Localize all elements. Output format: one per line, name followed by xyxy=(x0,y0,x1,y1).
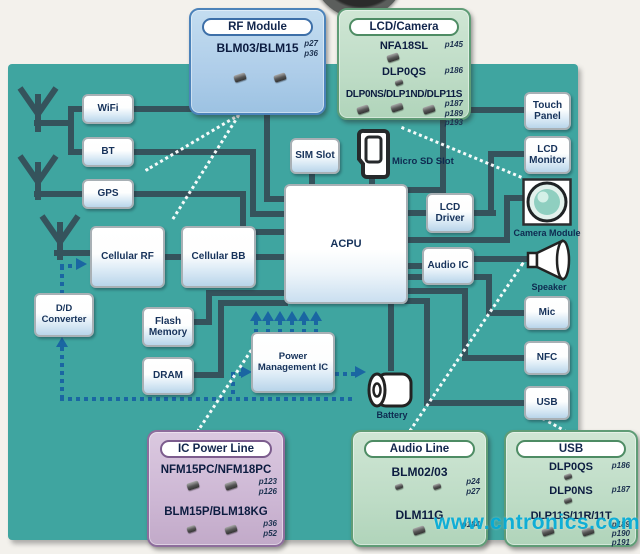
component-photo-icon xyxy=(233,72,247,82)
component-photo-icon xyxy=(356,104,370,114)
connector-line xyxy=(424,298,430,403)
component-photo-icon xyxy=(273,72,287,82)
page-refs: p187 xyxy=(612,485,630,495)
camera-module-icon xyxy=(522,178,572,226)
component-photo-icon xyxy=(432,483,441,490)
connector-line xyxy=(206,290,288,296)
power-arrow-icon xyxy=(250,311,262,321)
node-cellular-bb: Cellular BB xyxy=(181,226,256,288)
node-lcd-driver: LCD Driver xyxy=(426,193,474,233)
power-arrow-icon xyxy=(274,311,286,321)
callout-rf-module: RF Module BLM03/BLM15 p27 p36 xyxy=(189,8,326,115)
page-refs: p145 xyxy=(445,40,463,50)
page-refs: p123 p126 xyxy=(259,477,277,496)
connector-line xyxy=(264,106,270,202)
connector-line xyxy=(218,300,224,378)
connector-line xyxy=(388,303,394,371)
component-photo-icon xyxy=(394,483,403,490)
power-dashed-line xyxy=(60,266,64,294)
battery-label: Battery xyxy=(366,410,418,420)
power-arrow-icon xyxy=(310,311,322,321)
power-dashed-line xyxy=(335,372,355,376)
page-ref: p189 xyxy=(445,109,463,119)
power-dashed-line xyxy=(302,321,306,332)
connector-line xyxy=(218,300,288,306)
antenna-icon xyxy=(16,84,60,132)
page-ref: p27 xyxy=(466,487,480,497)
component-photo-icon xyxy=(563,497,572,504)
callout-ic-power-line: IC Power Line NFM15PC/NFM18PC p123 p126 … xyxy=(147,430,285,547)
node-flash-memory: Flash Memory xyxy=(142,307,194,347)
callout-title: IC Power Line xyxy=(160,440,273,458)
micro-sd-card-icon xyxy=(354,128,394,180)
component-photo-icon xyxy=(394,79,403,86)
micro-sd-slot-label: Micro SD Slot xyxy=(392,156,478,167)
page-ref: p187 xyxy=(445,99,463,109)
component-photo-icon xyxy=(386,52,400,62)
node-sim-slot: SIM Slot xyxy=(290,138,340,174)
callout-lcd-camera: LCD/Camera NFA18SL p145 DLP0QS p186 DLP0… xyxy=(337,8,471,120)
power-dashed-line xyxy=(314,321,318,332)
power-arrow-icon xyxy=(56,337,68,347)
node-lcd-monitor: LCD Monitor xyxy=(524,136,571,174)
power-arrow-icon xyxy=(355,366,366,378)
page-refs: p186 xyxy=(445,66,463,76)
component-photo-icon xyxy=(422,104,436,114)
page-ref: p24 xyxy=(466,477,480,487)
callout-title: Audio Line xyxy=(364,440,476,458)
node-mic: Mic xyxy=(524,296,570,330)
power-dashed-line xyxy=(278,321,282,332)
component-photo-icon xyxy=(224,480,238,490)
page-ref: p27 xyxy=(304,39,318,49)
connector-line xyxy=(424,400,528,406)
antenna-icon xyxy=(38,212,82,260)
page-ref: p187 xyxy=(612,485,630,495)
power-dashed-line xyxy=(290,321,294,332)
connector-line xyxy=(488,151,494,216)
component-photo-icon xyxy=(186,480,200,490)
component-photo-icon xyxy=(563,473,572,480)
node-bt: BT xyxy=(82,137,134,167)
connector-line xyxy=(404,237,510,243)
connector-line xyxy=(404,288,468,294)
page-ref: p123 xyxy=(259,477,277,487)
page-refs: p27 p36 xyxy=(304,39,318,58)
page-refs: p24 p27 xyxy=(466,477,480,496)
node-power-management-ic: Power Management IC xyxy=(251,332,335,393)
power-dashed-line xyxy=(266,321,270,332)
part-name: BLM15P/BLM18KG xyxy=(149,506,283,518)
component-photo-icon xyxy=(186,525,196,533)
connector-line xyxy=(252,254,288,260)
power-dashed-line xyxy=(254,321,258,332)
page-ref: p36 xyxy=(304,49,318,59)
node-wifi: WiFi xyxy=(82,94,134,124)
smartphone-block-diagram: WiFi BT GPS Cellular RF Cellular BB SIM … xyxy=(0,0,640,554)
part-name: NFM15PC/NFM18PC xyxy=(149,464,283,476)
node-nfc: NFC xyxy=(524,341,570,375)
callout-title: USB xyxy=(516,440,625,458)
node-gps: GPS xyxy=(82,179,134,209)
watermark: www.cntronics.com xyxy=(434,511,640,535)
node-cellular-rf: Cellular RF xyxy=(90,226,165,288)
component-photo-icon xyxy=(390,102,404,112)
node-usb: USB xyxy=(524,386,570,420)
power-dashed-line xyxy=(60,347,64,397)
battery-icon xyxy=(366,369,418,411)
speaker-label: Speaker xyxy=(516,282,582,292)
page-ref: p52 xyxy=(263,529,277,539)
callout-title: LCD/Camera xyxy=(349,18,458,36)
page-refs: p186 xyxy=(612,461,630,471)
page-ref: p186 xyxy=(445,66,463,76)
page-refs: p36 p52 xyxy=(263,519,277,538)
component-photo-icon xyxy=(224,524,238,534)
page-refs: p187 p189 p193 xyxy=(445,99,463,128)
connector-line xyxy=(250,149,256,217)
page-ref: p126 xyxy=(259,487,277,497)
node-acpu: ACPU xyxy=(284,184,408,304)
component-photo-icon xyxy=(412,525,426,535)
page-ref: p36 xyxy=(263,519,277,529)
node-touch-panel: Touch Panel xyxy=(524,92,571,130)
node-audio-ic: Audio IC xyxy=(422,247,474,285)
speaker-icon xyxy=(526,238,572,282)
callout-title: RF Module xyxy=(202,18,314,36)
connector-line xyxy=(130,149,256,155)
power-arrow-icon xyxy=(298,311,310,321)
node-dram: DRAM xyxy=(142,357,194,395)
power-arrow-icon xyxy=(286,311,298,321)
page-ref: p193 xyxy=(445,118,463,128)
connector-line xyxy=(462,355,528,361)
page-ref: p145 xyxy=(445,40,463,50)
page-ref: p186 xyxy=(612,461,630,471)
power-dashed-line xyxy=(60,397,352,401)
page-ref: p191 xyxy=(612,539,630,548)
camera-module-label: Camera Module xyxy=(500,228,594,238)
antenna-icon xyxy=(16,152,60,200)
power-arrow-icon xyxy=(262,311,274,321)
node-dd-converter: D/D Converter xyxy=(34,293,94,337)
connector-line xyxy=(68,106,74,155)
